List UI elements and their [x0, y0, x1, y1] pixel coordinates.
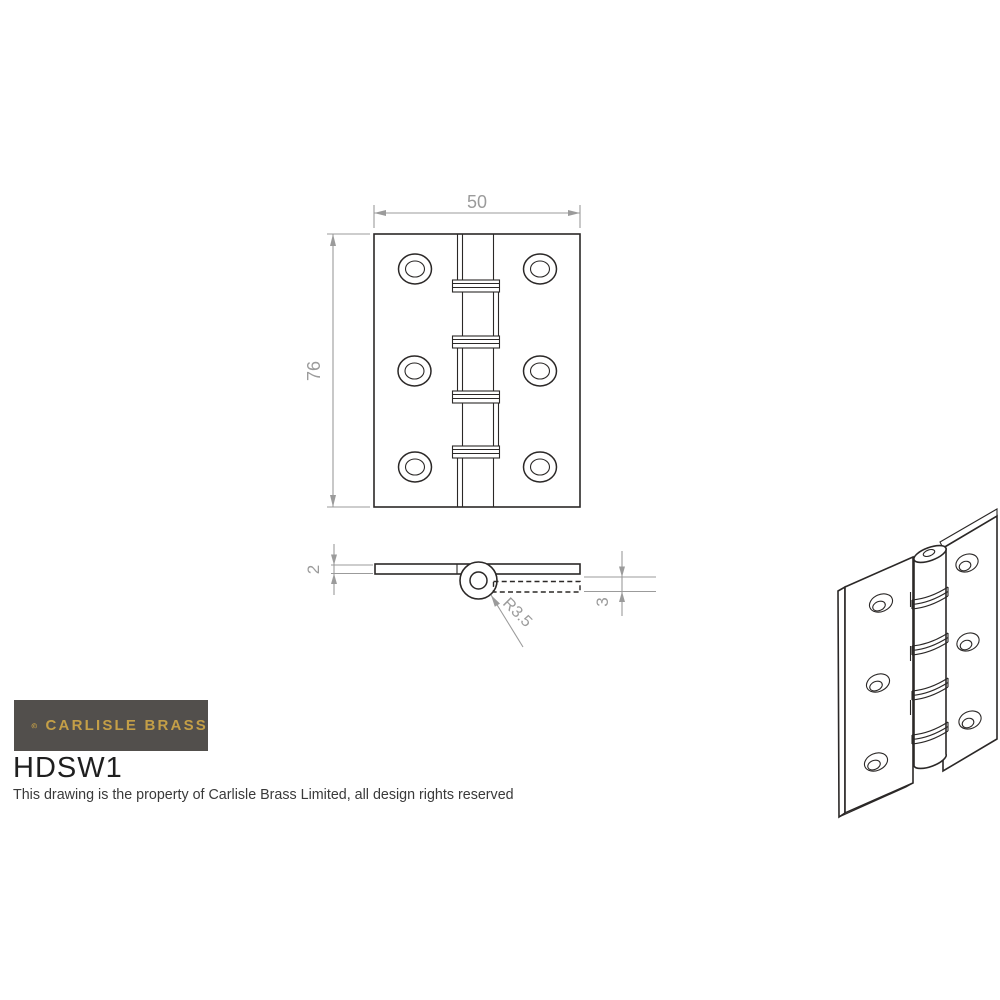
leader-arrowhead-icon	[491, 595, 500, 607]
arrowhead-down-icon	[331, 555, 337, 566]
width-dimension-label: 50	[467, 192, 487, 212]
arrowhead-right-icon	[568, 210, 580, 216]
drawing-sheet: 50 76 2	[0, 0, 1000, 1000]
property-notice: This drawing is the property of Carlisle…	[13, 787, 514, 803]
brand-name: CARLISLE BRASS	[46, 717, 208, 734]
height-dimension: 76	[304, 234, 370, 507]
leaf-thickness-dimension: 2	[304, 544, 373, 595]
iso-knuckle-barrel	[912, 542, 948, 768]
leaf-thickness-label: 2	[304, 565, 323, 574]
arrowhead-up-icon	[331, 574, 337, 585]
brand-logo-box: CARLISLE BRASS	[14, 700, 208, 751]
lower-leaf-dimension: 3	[584, 551, 656, 616]
arrowhead-left-icon	[374, 210, 386, 216]
lower-leaf-hidden-edge	[494, 582, 581, 593]
isometric-view	[838, 509, 997, 817]
technical-drawing-canvas: 50 76 2	[0, 0, 1000, 1000]
arrowhead-up-icon	[330, 234, 336, 246]
arrowhead-up-icon	[619, 592, 625, 603]
side-view: 2 3 R3.5	[304, 544, 656, 647]
knuckle-radius-label: R3.5	[499, 595, 535, 631]
iso-left-leaf	[838, 557, 913, 817]
knuckle-barrel-section	[460, 562, 497, 599]
carlisle-brass-logo-icon	[31, 713, 38, 739]
front-view: 50 76	[304, 192, 580, 507]
arrowhead-down-icon	[330, 495, 336, 507]
lower-leaf-thickness-label: 3	[593, 597, 612, 606]
product-code: HDSW1	[13, 752, 123, 785]
width-dimension: 50	[374, 192, 580, 228]
knuckle-radius-callout: R3.5	[491, 595, 535, 647]
arrowhead-down-icon	[619, 567, 625, 578]
height-dimension-label: 76	[304, 361, 324, 381]
